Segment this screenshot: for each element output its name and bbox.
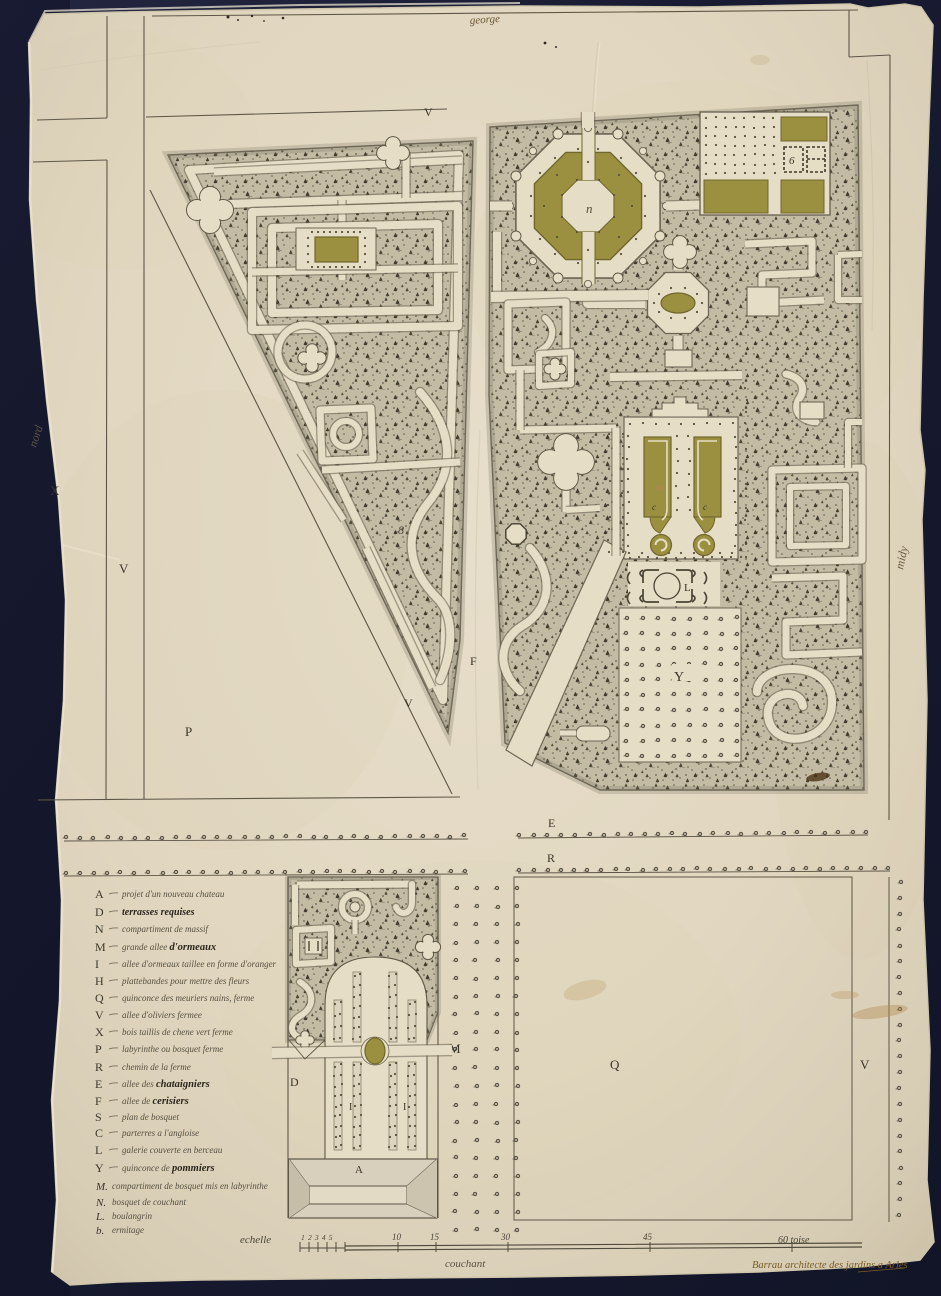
svg-text:V: V <box>860 1057 870 1072</box>
svg-text:H: H <box>95 974 104 988</box>
svg-text:galerie couverte en berceau: galerie couverte en berceau <box>122 1145 223 1155</box>
svg-text:I: I <box>349 1102 352 1113</box>
svg-text:c: c <box>652 502 656 512</box>
svg-text:R: R <box>95 1060 103 1074</box>
svg-text:M.: M. <box>95 1181 108 1193</box>
svg-text:allee d'oliviers fermee: allee d'oliviers fermee <box>122 1010 202 1020</box>
svg-text:ermitage: ermitage <box>112 1225 144 1235</box>
svg-text:D: D <box>290 1075 299 1089</box>
svg-text:terrasses requises: terrasses requises <box>122 907 195 918</box>
svg-text:M: M <box>95 940 106 954</box>
svg-text:L.: L. <box>95 1211 105 1223</box>
svg-text:P: P <box>185 724 192 739</box>
svg-text:F: F <box>95 1094 102 1108</box>
svg-text:A: A <box>355 1164 363 1176</box>
svg-text:L: L <box>95 1143 102 1157</box>
svg-text:60 toise: 60 toise <box>778 1235 810 1246</box>
svg-text:S: S <box>95 1110 102 1124</box>
svg-text:V: V <box>95 1008 104 1022</box>
svg-text:R: R <box>547 851 555 865</box>
svg-text:C: C <box>95 1126 103 1140</box>
svg-text:echelle: echelle <box>240 1234 271 1246</box>
svg-text:c: c <box>703 502 707 512</box>
svg-text:projet d'un nouveau chateau: projet d'un nouveau chateau <box>121 889 225 899</box>
svg-text:allee des chataigniers: allee des chataigniers <box>122 1079 210 1090</box>
svg-text:bosquet de couchant: bosquet de couchant <box>112 1197 186 1207</box>
svg-text:compartiment de massif: compartiment de massif <box>122 924 209 934</box>
svg-text:couchant: couchant <box>445 1258 486 1270</box>
svg-text:allee d'ormeaux taillee en for: allee d'ormeaux taillee en forme d'orang… <box>122 959 277 969</box>
svg-text:n: n <box>586 201 593 216</box>
svg-text:george: george <box>469 13 500 27</box>
svg-text:plan de bosquet: plan de bosquet <box>121 1112 179 1122</box>
svg-text:15: 15 <box>430 1232 440 1242</box>
svg-text:P: P <box>95 1042 102 1056</box>
svg-text:X: X <box>50 483 60 498</box>
svg-text:N.: N. <box>95 1197 106 1209</box>
svg-text:V: V <box>404 696 413 710</box>
svg-text:quinconce de pommiers: quinconce de pommiers <box>122 1163 215 1174</box>
svg-text:45: 45 <box>643 1232 653 1242</box>
svg-text:I: I <box>95 957 99 971</box>
svg-text:D: D <box>95 905 104 919</box>
svg-text:12345: 12345 <box>301 1233 336 1242</box>
svg-text:plattebandes pour mettre des f: plattebandes pour mettre des fleurs <box>121 976 250 986</box>
svg-text:8: 8 <box>398 523 404 537</box>
svg-text:F: F <box>470 654 477 668</box>
svg-text:compartiment de bosquet mis en: compartiment de bosquet mis en labyrinth… <box>112 1181 268 1191</box>
svg-text:10: 10 <box>392 1232 402 1242</box>
svg-text:boulangrin: boulangrin <box>112 1211 153 1221</box>
svg-text:30: 30 <box>500 1232 511 1242</box>
svg-text:A: A <box>95 887 104 901</box>
svg-text:Barrau architecte des jardins: Barrau architecte des jardins a Arles <box>752 1260 908 1271</box>
svg-text:parterres a l'angloise: parterres a l'angloise <box>121 1128 199 1138</box>
svg-text:6: 6 <box>789 155 795 167</box>
svg-text:V: V <box>424 105 433 119</box>
svg-text:V: V <box>119 561 129 576</box>
svg-text:Y: Y <box>95 1161 104 1175</box>
svg-text:N: N <box>95 922 104 936</box>
svg-text:Q: Q <box>95 991 104 1005</box>
svg-text:b.: b. <box>96 1225 104 1237</box>
svg-text:quinconce des meuriers nains,: quinconce des meuriers nains, ferme <box>122 993 254 1003</box>
svg-text:E: E <box>548 816 555 830</box>
svg-text:Y: Y <box>674 670 684 685</box>
svg-text:E: E <box>95 1077 102 1091</box>
svg-text:bois taillis de chene vert fer: bois taillis de chene vert ferme <box>122 1027 233 1037</box>
svg-text:L: L <box>684 582 691 594</box>
svg-text:allee de cerisiers: allee de cerisiers <box>122 1096 189 1107</box>
svg-text:X: X <box>95 1025 104 1039</box>
svg-text:Q: Q <box>610 1057 620 1072</box>
svg-text:labyrinthe ou bosquet ferme: labyrinthe ou bosquet ferme <box>122 1044 223 1054</box>
svg-text:grande allee d'ormeaux: grande allee d'ormeaux <box>122 942 216 953</box>
svg-text:I: I <box>403 1102 406 1113</box>
svg-text:chemin de la ferme: chemin de la ferme <box>122 1062 191 1072</box>
